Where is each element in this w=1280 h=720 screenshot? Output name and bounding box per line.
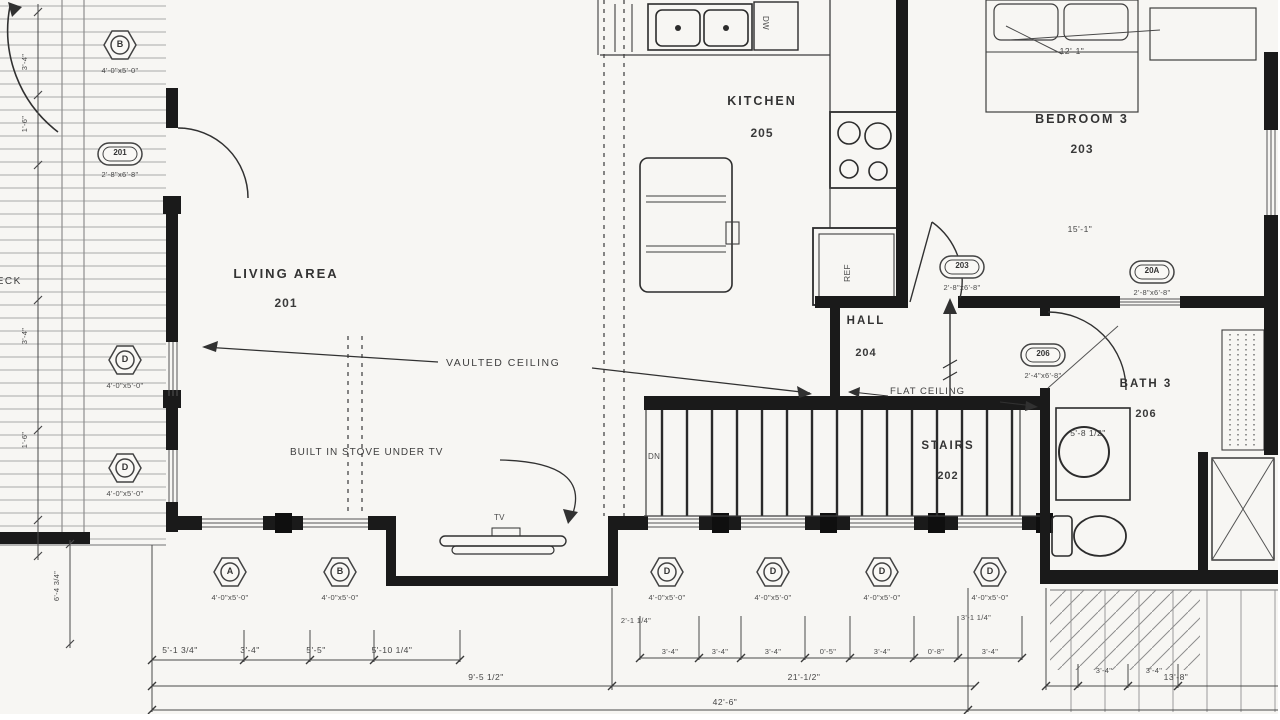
window-tag-letter: D [984, 566, 996, 576]
tv-label: TV [494, 513, 505, 522]
window-tag-letter: D [119, 462, 131, 472]
dim-label: 3'-4" [970, 647, 1010, 656]
window-tag-size: 4'-0"x5'-0" [304, 593, 376, 602]
door-tag-size: 2'-8"x6'-8" [84, 170, 156, 179]
window-tag-size: 4'-0"x5'-0" [631, 593, 703, 602]
dim-label: 3'-4" [1082, 666, 1126, 675]
refrigerator-label: REF [842, 264, 852, 282]
window-tag-letter: B [334, 566, 346, 576]
dim-label: 3'-4" [20, 46, 29, 78]
window-tag-letter: B [114, 39, 126, 49]
dim-label: 3'-4" [862, 647, 902, 656]
room-number-hall: 204 [836, 347, 896, 359]
deck-label: DECK [0, 276, 22, 287]
door-tag-size: 2'-8"x6'-8" [926, 283, 998, 292]
floor-plan-canvas: LIVING AREA 201 KITCHEN 205 BEDROOM 3 20… [0, 0, 1280, 720]
window-tag-letter: D [119, 354, 131, 364]
window-tag-size: 4'-0"x5'-0" [89, 381, 161, 390]
dim-label: 1'-6" [20, 424, 29, 456]
window-tag-size: 4'-0"x5'-0" [954, 593, 1026, 602]
plan-labels: LIVING AREA 201 KITCHEN 205 BEDROOM 3 20… [0, 0, 1280, 720]
vaulted-ceiling-note: VAULTED CEILING [446, 357, 560, 369]
window-tag-size: 4'-0"x5'-0" [89, 489, 161, 498]
flat-ceiling-note: FLAT CEILING [890, 386, 965, 397]
door-tag-number: 20A [1130, 266, 1174, 275]
room-number-bedroom3: 203 [1022, 142, 1142, 156]
room-label-stairs: STAIRS [908, 440, 988, 452]
window-tag-size: 4'-0"x5'-0" [84, 66, 156, 75]
dim-label: 21'-1/2" [776, 672, 832, 682]
dim-label: 3'-4" [650, 647, 690, 656]
room-label-hall: HALL [836, 315, 896, 327]
room-label-bedroom3: BEDROOM 3 [1022, 112, 1142, 126]
room-label-living: LIVING AREA [216, 266, 356, 281]
dim-label: 3'-4" [1132, 666, 1176, 675]
room-label-bath3: BATH 3 [1106, 378, 1186, 390]
room-number-bath3: 206 [1106, 408, 1186, 420]
crop-edge-bottom [0, 714, 1280, 720]
dim-label: 3'-1 1/4" [948, 613, 1004, 622]
built-in-stove-note: BUILT IN STOVE UNDER TV [290, 447, 443, 458]
dim-label: 3'-4" [20, 320, 29, 352]
window-tag-letter: D [876, 566, 888, 576]
window-tag-letter: A [224, 566, 236, 576]
dim-label: 42'-6" [700, 697, 750, 707]
window-tag-size: 4'-0"x5'-0" [846, 593, 918, 602]
dishwasher-label: DW [761, 16, 770, 30]
window-tag-size: 4'-0"x5'-0" [737, 593, 809, 602]
dim-label: 1'-6" [20, 108, 29, 140]
dim-label: 2'-1 1/4" [608, 616, 664, 625]
dim-label: 5'-10 1/4" [360, 645, 424, 655]
dim-label: 15'-1" [1056, 224, 1104, 234]
door-tag-number: 203 [940, 261, 984, 270]
room-number-kitchen: 205 [712, 126, 812, 140]
window-tag-letter: D [661, 566, 673, 576]
room-label-kitchen: KITCHEN [712, 94, 812, 108]
dim-label: 0'-8" [916, 647, 956, 656]
window-tag-letter: D [767, 566, 779, 576]
dim-label: 5'-8 1/2" [1058, 428, 1118, 438]
dim-label: 0'-5" [808, 647, 848, 656]
dim-label: 9'-5 1/2" [456, 672, 516, 682]
dim-label: 5'-5" [296, 645, 336, 655]
dim-label: 3'-4" [753, 647, 793, 656]
door-tag-size: 2'-8"x6'-8" [1116, 288, 1188, 297]
dim-label: 6'-4 3/4" [52, 560, 61, 612]
room-number-living: 201 [216, 296, 356, 310]
door-tag-number: 201 [98, 148, 142, 157]
dim-label: 3'-4" [230, 645, 270, 655]
door-tag-number: 206 [1021, 349, 1065, 358]
dim-label: 12'-1" [1048, 46, 1096, 56]
window-tag-size: 4'-0"x5'-0" [194, 593, 266, 602]
room-number-stairs: 202 [908, 470, 988, 482]
dim-label: 5'-1 3/4" [150, 645, 210, 655]
dim-label: 3'-4" [700, 647, 740, 656]
door-tag-size: 2'-4"x6'-8" [1007, 371, 1079, 380]
down-label: DN [648, 452, 660, 461]
